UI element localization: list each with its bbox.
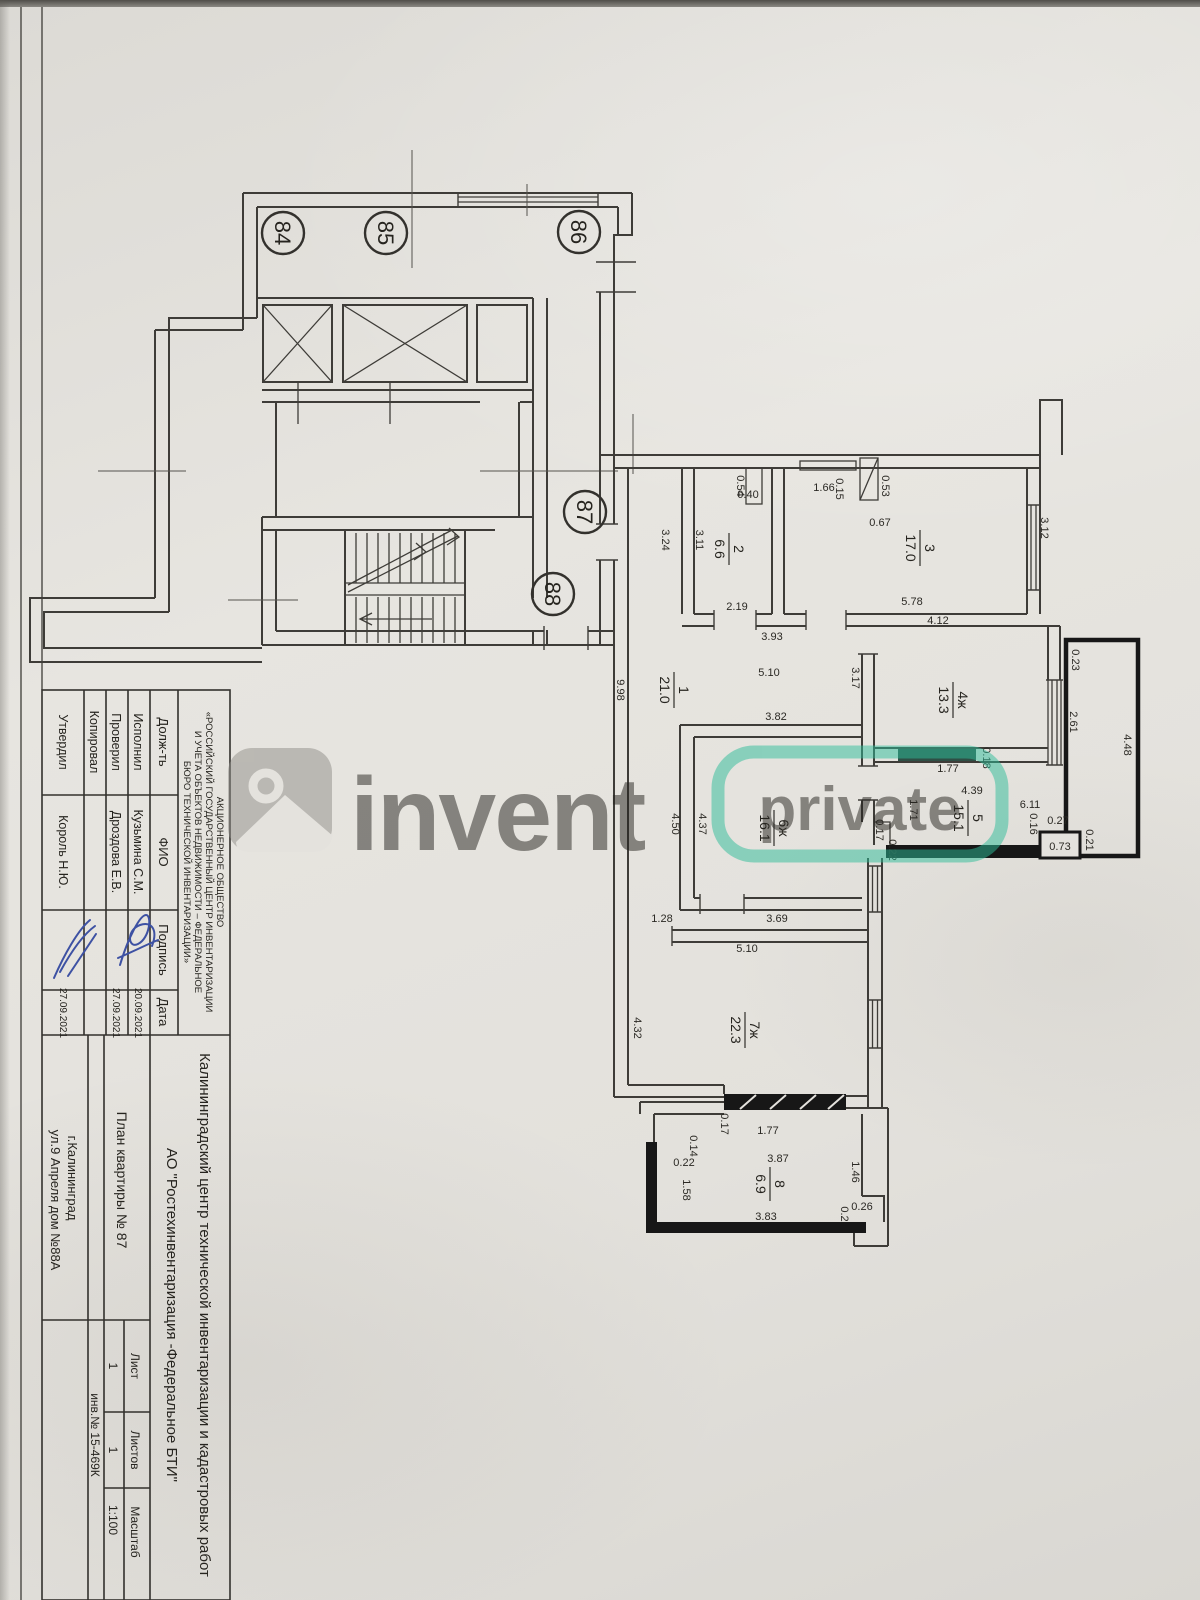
dim-label: 4.37 <box>696 813 708 834</box>
dim-label: 3.69 <box>766 913 787 925</box>
approver-signature <box>54 920 96 978</box>
svg-text:27.09.2021: 27.09.2021 <box>57 988 68 1038</box>
stamp-rows: Исполнил Проверил Копировал Утвердил Куз… <box>56 711 145 895</box>
dim-label: 0.21 <box>1083 829 1095 850</box>
sheet-label: Лист <box>128 1353 142 1380</box>
dim-label: 4.12 <box>927 615 948 627</box>
stamp-lower: Калининградский центр технической инвент… <box>48 1053 213 1577</box>
svg-text:13.3: 13.3 <box>936 686 952 713</box>
dim-label: 0.26 <box>851 1201 872 1213</box>
watermark-brand: invent <box>350 757 646 873</box>
stamp-dates: 20.09.2021 27.09.2021 27.09.2021 <box>57 988 143 1038</box>
dim-label: 3.24 <box>659 529 671 550</box>
section-marks <box>98 150 633 600</box>
svg-text:84: 84 <box>270 221 295 245</box>
city: г.Калининград <box>65 1136 80 1221</box>
svg-text:Подпись: Подпись <box>156 924 171 976</box>
svg-text:Исполнил: Исполнил <box>131 713 145 770</box>
dimension-labels: 0.54 0.40 1.66 0.15 0.53 0.67 3.24 3.11 … <box>614 475 1133 1223</box>
dim-label: 0.2 <box>838 1206 850 1221</box>
svg-text:ФИО: ФИО <box>156 837 171 866</box>
svg-text:85: 85 <box>373 221 398 245</box>
dim-label: 3.82 <box>765 711 786 723</box>
scanned-floor-plan-document: 0.54 0.40 1.66 0.15 0.53 0.67 3.24 3.11 … <box>0 0 1200 1600</box>
dim-label: 3.11 <box>693 530 705 551</box>
dim-label: 0.23 <box>1069 649 1081 670</box>
dim-label: 0.15 <box>833 478 845 499</box>
svg-text:88: 88 <box>540 582 565 606</box>
svg-text:БЮРО ТЕХНИЧЕСКОЙ ИНВЕНТАРИЗАЦИ: БЮРО ТЕХНИЧЕСКОЙ ИНВЕНТАРИЗАЦИИ» <box>181 761 193 963</box>
dim-label: 9.98 <box>614 679 626 700</box>
sheets-value: 1 <box>106 1447 120 1454</box>
dim-label: 1.66 <box>813 482 834 494</box>
room-label: 1 21.0 <box>657 672 692 708</box>
staircase <box>345 528 465 645</box>
dim-label: 0.22 <box>673 1157 694 1169</box>
dim-label: 1.28 <box>651 913 672 925</box>
room-label: 8 6.9 <box>753 1167 788 1201</box>
svg-text:4ж: 4ж <box>955 691 971 709</box>
svg-text:И УЧЕТА ОБЪЕКТОВ НЕДВИЖИМОСТИ: И УЧЕТА ОБЪЕКТОВ НЕДВИЖИМОСТИ – ФЕДЕРАЛЬ… <box>192 731 203 993</box>
dim-label: 1.58 <box>680 1179 692 1200</box>
svg-text:«РОССИЙСКИЙ ГОСУДАРСТВЕННЫЙ ЦЕ: «РОССИЙСКИЙ ГОСУДАРСТВЕННЫЙ ЦЕНТР ИНВЕНТ… <box>203 712 215 1013</box>
scale-label: Масштаб <box>128 1506 142 1557</box>
svg-text:Дата: Дата <box>156 998 171 1028</box>
svg-text:7ж: 7ж <box>747 1021 763 1039</box>
watermark-badge: private <box>718 752 1002 856</box>
executor-signature <box>118 915 158 965</box>
dim-label: 2.61 <box>1067 711 1079 732</box>
address: ул.9 Апреля дом №88А <box>48 1130 63 1271</box>
inventory-number: инв.№ 15-469К <box>88 1393 102 1477</box>
scan-edge <box>0 0 1200 7</box>
svg-text:3: 3 <box>922 544 938 552</box>
svg-text:Долж-ть: Долж-ть <box>156 717 171 766</box>
title-company: АО "Ростехинвентаризация -Федеральное БТ… <box>163 1148 180 1482</box>
svg-text:Утвердил: Утвердил <box>56 714 70 769</box>
dim-label: 0.40 <box>737 489 758 501</box>
dim-label: 3.87 <box>767 1153 788 1165</box>
svg-text:8: 8 <box>772 1180 788 1188</box>
dim-label: 1.46 <box>849 1161 861 1182</box>
room-label: 2 6.6 <box>712 533 747 565</box>
dim-label: 0.73 <box>1049 841 1070 853</box>
drawing-sheet: 0.54 0.40 1.66 0.15 0.53 0.67 3.24 3.11 … <box>0 0 1200 1600</box>
svg-text:6.9: 6.9 <box>753 1174 769 1194</box>
svg-text:2: 2 <box>731 545 747 553</box>
dim-label: 0.67 <box>869 517 890 529</box>
room-label: 7ж 22.3 <box>728 1012 763 1048</box>
dim-label: 3.17 <box>849 667 861 688</box>
title-block: АКЦИОНЕРНОЕ ОБЩЕСТВО «РОССИЙСКИЙ ГОСУДАР… <box>42 690 230 1600</box>
dim-label: 1.77 <box>757 1125 778 1137</box>
svg-text:22.3: 22.3 <box>728 1016 744 1043</box>
sheets-label: Листов <box>128 1431 142 1470</box>
scale-value: 1:100 <box>106 1505 120 1535</box>
apartment-circle: 88 <box>532 573 574 615</box>
svg-text:21.0: 21.0 <box>657 676 673 703</box>
svg-text:86: 86 <box>566 220 591 244</box>
dim-label: 5.78 <box>901 596 922 608</box>
watermark-logo-icon <box>228 748 333 852</box>
svg-text:Проверил: Проверил <box>109 713 123 771</box>
elevator-shafts <box>263 305 527 424</box>
svg-text:5: 5 <box>970 814 986 822</box>
stamp-headers: Долж-ть ФИО Подпись Дата <box>156 717 171 1027</box>
svg-text:Дроздова Е.В.: Дроздова Е.В. <box>109 811 123 893</box>
svg-text:Король Н.Ю.: Король Н.Ю. <box>56 815 70 889</box>
dim-label: 4.32 <box>631 1017 643 1038</box>
apartment-circle: 84 <box>262 212 304 254</box>
svg-text:20.09.2021: 20.09.2021 <box>132 988 143 1038</box>
dim-label: 5.10 <box>736 943 757 955</box>
svg-text:17.0: 17.0 <box>903 534 919 561</box>
svg-text:6.6: 6.6 <box>712 539 728 559</box>
svg-text:87: 87 <box>572 500 597 524</box>
organization-name: АКЦИОНЕРНОЕ ОБЩЕСТВО «РОССИЙСКИЙ ГОСУДАР… <box>181 712 225 1013</box>
scan-edge-shadow <box>0 0 10 1600</box>
dim-label: 2.19 <box>726 601 747 613</box>
sheet-frame <box>21 7 42 1600</box>
dim-label: 3.12 <box>1038 517 1050 538</box>
dim-label: 1.77 <box>937 763 958 775</box>
dim-label: 6.11 <box>1020 799 1041 811</box>
dim-label: 0.14 <box>687 1135 699 1156</box>
svg-text:1: 1 <box>676 686 692 694</box>
svg-text:АКЦИОНЕРНОЕ ОБЩЕСТВО: АКЦИОНЕРНОЕ ОБЩЕСТВО <box>214 797 225 928</box>
watermark-badge-label: private <box>758 775 961 844</box>
dim-label: 0.17 <box>718 1113 730 1134</box>
apartment-circle: 85 <box>365 212 407 254</box>
room-label: 3 17.0 <box>903 530 938 566</box>
dim-label: 0.16 <box>1027 813 1039 834</box>
svg-text:27.09.2021: 27.09.2021 <box>110 988 121 1038</box>
plan-title: План квартиры № 87 <box>114 1112 130 1249</box>
svg-text:Копировал: Копировал <box>87 711 101 774</box>
dim-label: 3.83 <box>755 1211 776 1223</box>
svg-text:Кузьмина С.М.: Кузьмина С.М. <box>131 809 145 894</box>
title-center: Калининградский центр технической инвент… <box>196 1053 213 1577</box>
watermark: invent private <box>228 748 1002 873</box>
apartment-number-circles: 84 85 86 87 88 <box>262 211 606 615</box>
dim-label: 3.93 <box>761 631 782 643</box>
apartment-circle: 86 <box>558 211 600 253</box>
room-label: 4ж 13.3 <box>936 682 971 718</box>
dim-label: 4.39 <box>961 785 982 797</box>
dim-label: 4.50 <box>669 813 681 834</box>
dim-label: 0.27 <box>1047 815 1068 827</box>
sheet-value: 1 <box>106 1363 120 1370</box>
dim-label: 0.53 <box>879 475 891 496</box>
dim-label: 5.10 <box>758 667 779 679</box>
dim-label: 4.48 <box>1121 734 1133 755</box>
